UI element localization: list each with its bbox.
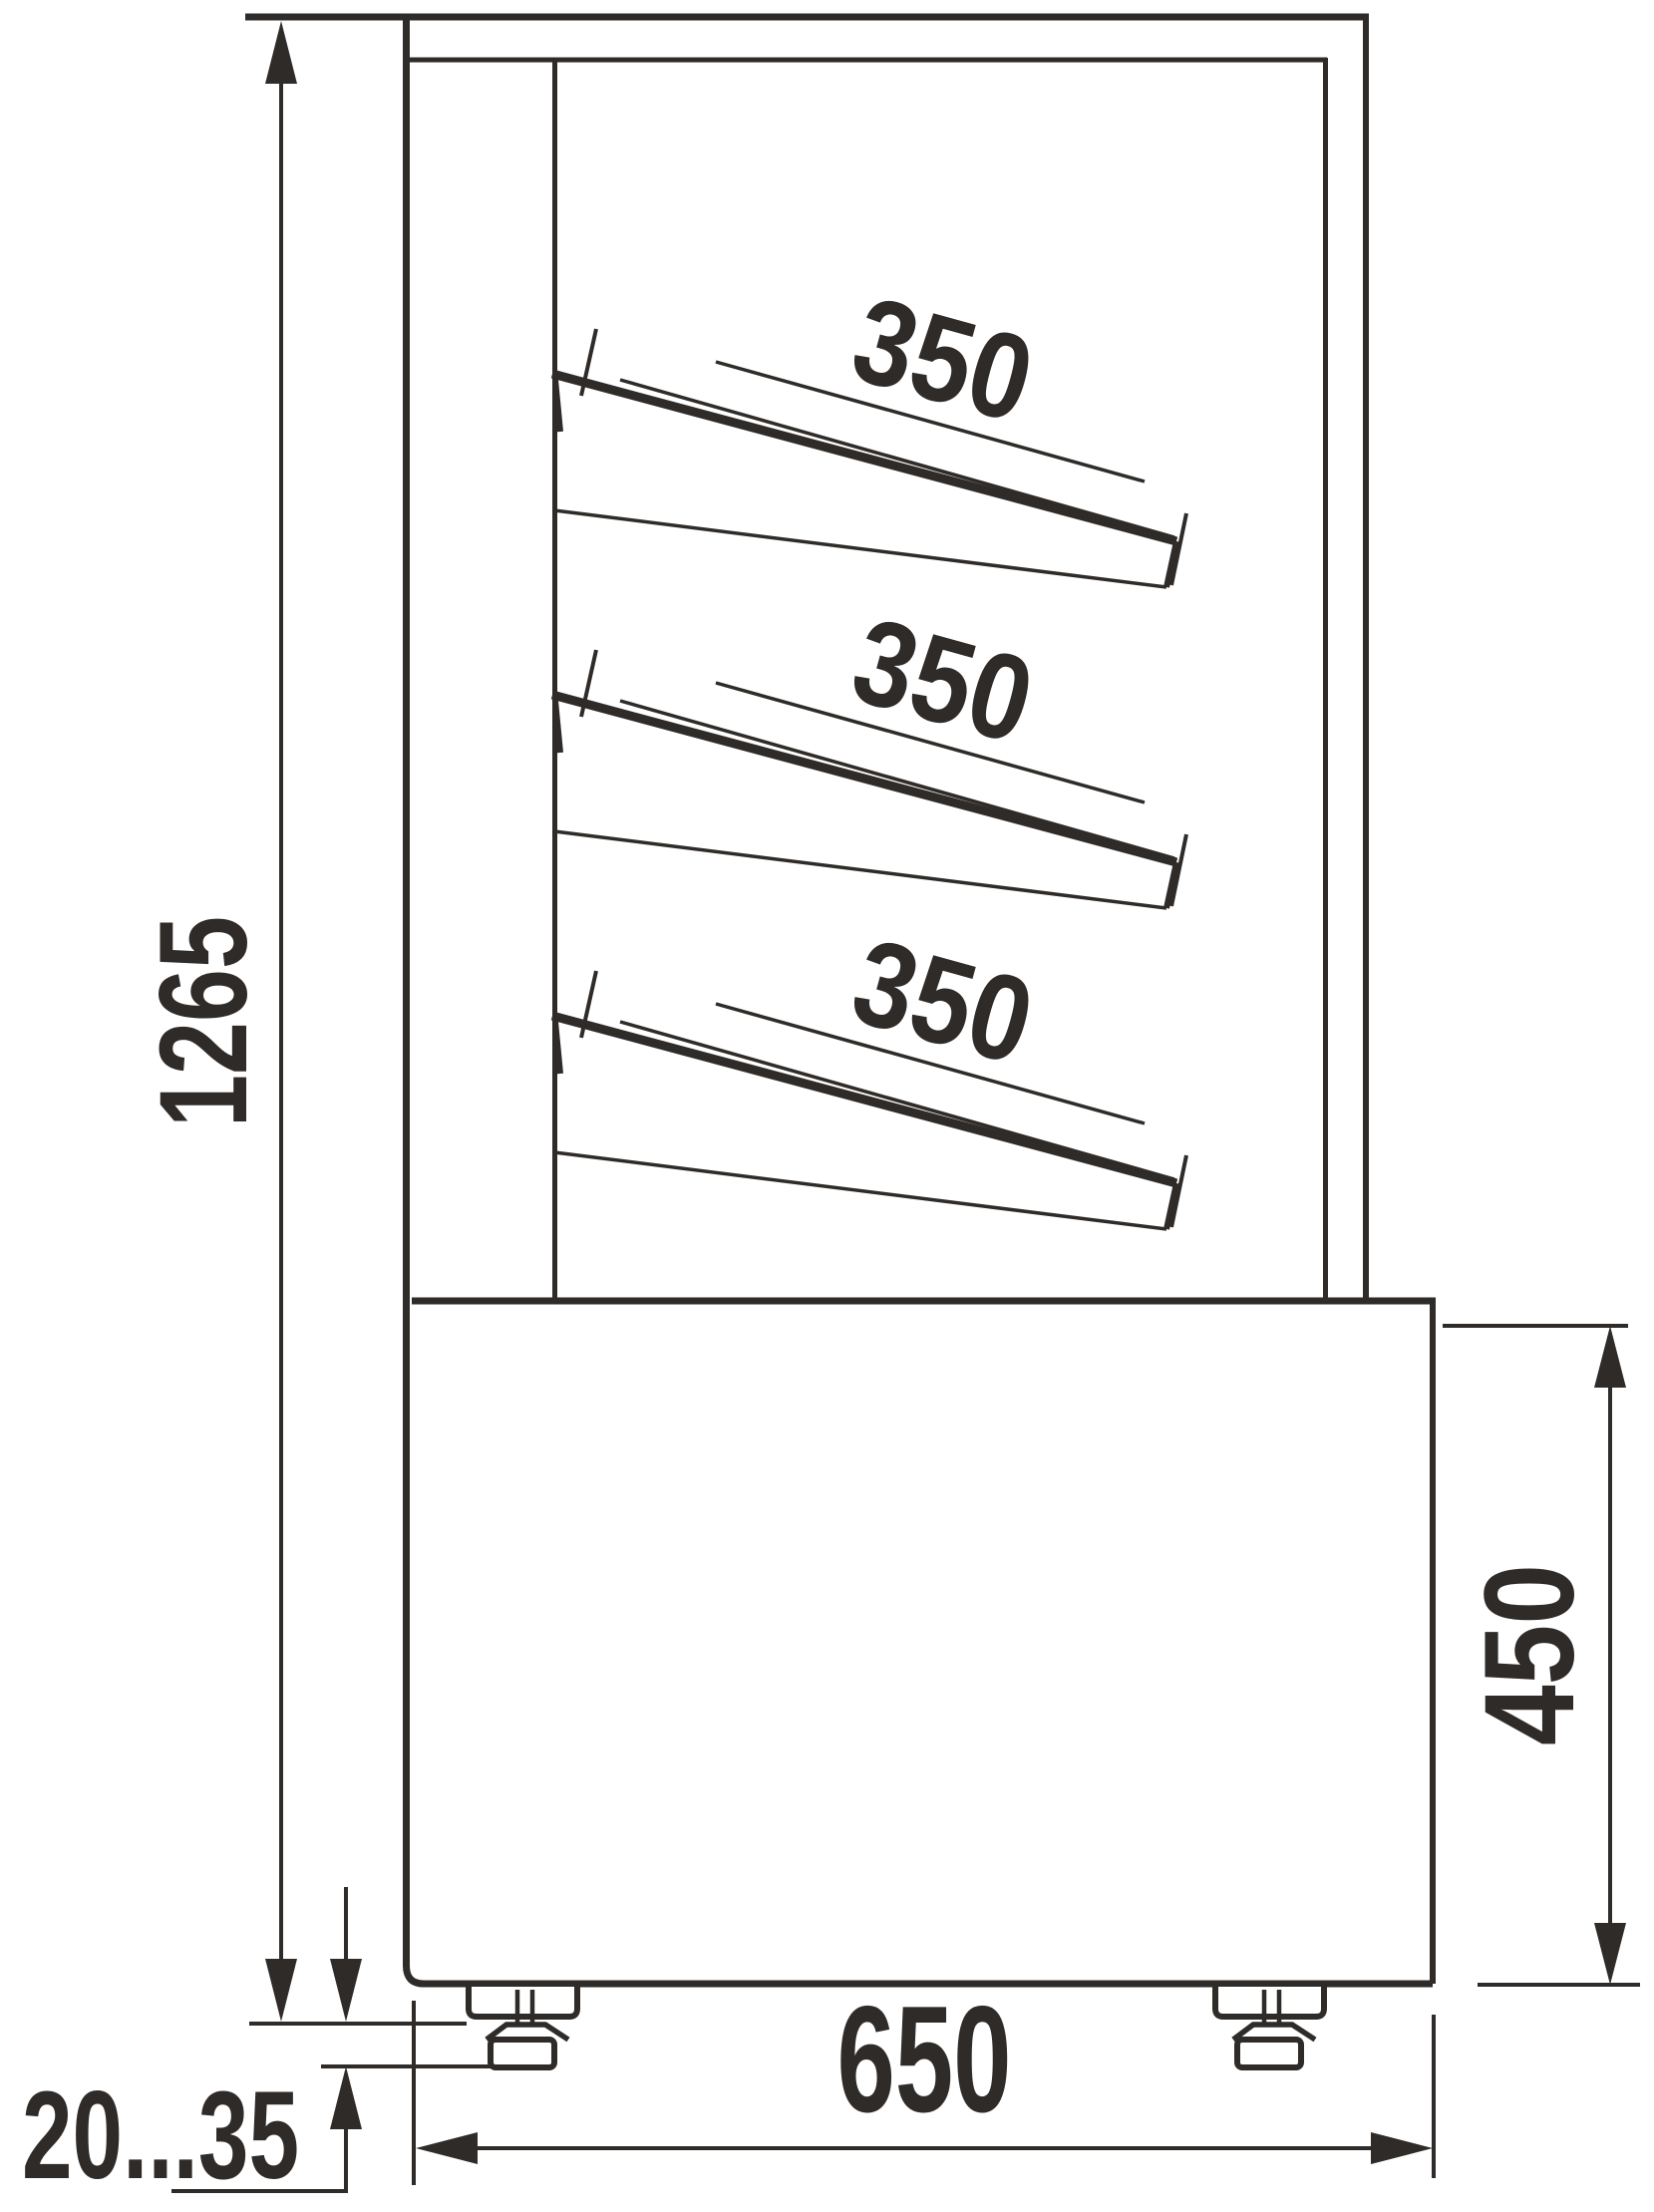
shelf-bottom: 350	[552, 912, 1186, 1229]
foot-right	[1215, 1987, 1324, 2067]
dimension-total-height: 1265	[135, 21, 467, 2024]
dimension-base-height: 450	[1443, 1326, 1640, 1985]
base-depth-label: 650	[837, 1975, 1012, 2144]
arrow-up-icon	[265, 21, 297, 84]
foot-pad	[1237, 2040, 1301, 2067]
drawing-page: 350 350 350	[0, 0, 1654, 2212]
shelf-underside	[554, 831, 1166, 908]
shelf-middle: 350	[552, 591, 1186, 908]
shelf-underside	[554, 1152, 1166, 1229]
foot-left	[469, 1987, 577, 2067]
arrow-down-icon	[330, 1959, 362, 2022]
shelf-top: 350	[552, 270, 1186, 587]
shelf-depth-label: 350	[839, 912, 1047, 1090]
shelf-depth-label: 350	[839, 270, 1047, 448]
technical-drawing: 350 350 350	[0, 0, 1654, 2212]
arrow-down-icon	[265, 1959, 297, 2022]
shelf-depth-label: 350	[839, 591, 1047, 769]
arrow-right-icon	[1371, 2132, 1433, 2164]
arrow-left-icon	[416, 2132, 478, 2164]
arrow-up-icon	[1594, 1326, 1626, 1388]
base-height-label: 450	[1459, 1564, 1601, 1745]
arrow-up-icon	[330, 2066, 362, 2129]
shelf-underside	[554, 510, 1166, 587]
cabinet-outline	[245, 14, 1436, 1984]
arrow-down-icon	[1594, 1923, 1626, 1985]
foot-bracket	[469, 1987, 577, 2017]
foot-pad	[491, 2040, 554, 2067]
total-height-label: 1265	[135, 916, 273, 1127]
foot-bracket	[1215, 1987, 1324, 2017]
foot-range-label: 20...35	[22, 2066, 299, 2205]
